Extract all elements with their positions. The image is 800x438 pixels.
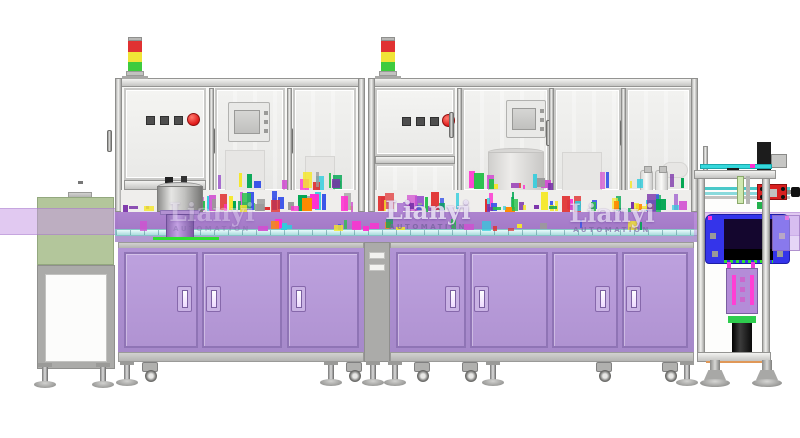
door-handle xyxy=(449,112,454,138)
machine-foot xyxy=(700,360,730,388)
machinery-parts-window-b xyxy=(463,170,690,190)
panel-button xyxy=(160,116,169,125)
infeed-sensor xyxy=(78,181,83,184)
stack-flange xyxy=(375,76,401,79)
hmi-key xyxy=(540,127,544,131)
housing-bolt xyxy=(777,251,783,257)
cabinet-door-handle xyxy=(445,286,460,312)
stack-green-lens xyxy=(381,62,395,71)
pillar-vent xyxy=(369,252,385,259)
hmi-key xyxy=(540,118,544,122)
cabinet-door-handle xyxy=(291,286,306,312)
leveling-foot xyxy=(490,364,496,380)
stack-red-lens xyxy=(381,41,395,52)
slide-shaft xyxy=(746,176,750,204)
conveyor-band-left xyxy=(0,208,118,235)
slide-bolt xyxy=(740,277,745,282)
stack-flange xyxy=(122,76,148,79)
hmi-key xyxy=(540,109,544,113)
slide-bolt xyxy=(740,297,745,302)
station-post xyxy=(697,178,705,362)
machinery-parts-b xyxy=(375,190,691,212)
hmi-key xyxy=(264,111,268,115)
hmi-key xyxy=(264,129,268,133)
stack-yellow-lens xyxy=(128,52,142,62)
module-a-control-door xyxy=(124,88,206,180)
panel-button xyxy=(174,116,183,125)
stack-light-a xyxy=(122,37,148,79)
module-b-top-rail xyxy=(368,78,698,87)
machine-foot xyxy=(752,360,782,388)
hmi-key xyxy=(264,120,268,124)
cabinet-pillar xyxy=(364,242,390,362)
cabinet-door-handle xyxy=(177,286,192,312)
caster-wheel xyxy=(142,362,158,372)
housing-bolt xyxy=(712,251,718,257)
panel-button xyxy=(416,117,425,126)
hmi-panel-a xyxy=(228,102,270,142)
leveling-foot xyxy=(684,364,690,380)
leveling-foot xyxy=(392,364,398,380)
caster-wheel xyxy=(346,362,362,372)
cabinet-door-handle xyxy=(206,286,221,312)
press-slide-block xyxy=(726,268,758,314)
frame-post xyxy=(358,78,365,212)
emergency-stop-button xyxy=(187,113,200,126)
sensor-dot xyxy=(750,164,755,168)
cabinet-door-handle xyxy=(626,286,641,312)
press-cylinder xyxy=(732,323,752,353)
adjust-knob xyxy=(791,187,800,197)
stack-red-lens xyxy=(128,41,142,52)
frame-post xyxy=(368,78,375,212)
leveling-foot xyxy=(370,364,376,380)
hmi-screen xyxy=(512,108,536,130)
bowl-feeder-body xyxy=(157,186,203,212)
frame-post xyxy=(457,88,462,192)
cabinet-door-handle xyxy=(595,286,610,312)
machinery-parts-window-a xyxy=(217,172,357,190)
caster-wheel xyxy=(596,362,612,372)
pillar-vent xyxy=(369,264,385,271)
stack-yellow-lens xyxy=(381,52,395,62)
clamp-bolt xyxy=(781,195,785,199)
infeed-stand-panel xyxy=(45,274,107,362)
leveling-foot xyxy=(124,364,130,380)
panel-button xyxy=(402,117,411,126)
caster-wheel xyxy=(414,362,430,372)
slide-bolt xyxy=(740,287,745,292)
hmi-panel-b xyxy=(506,100,546,138)
leveling-foot xyxy=(42,366,48,382)
accent-green-line xyxy=(153,237,219,240)
motor-coupler xyxy=(771,154,787,168)
panel-button xyxy=(146,116,155,125)
green-slide-bar xyxy=(737,176,744,204)
leveling-foot xyxy=(328,364,334,380)
stack-green-lens xyxy=(128,62,142,71)
slide-slot xyxy=(750,275,754,305)
module-b-mid-rail xyxy=(375,156,455,164)
housing-bolt xyxy=(710,233,716,239)
station-post xyxy=(762,178,770,362)
automation-line-render: Lianyi AUTOMATION Lianyi AUTOMATION Lian… xyxy=(0,0,800,438)
bowl-feeder-base xyxy=(166,214,194,238)
hmi-screen xyxy=(234,110,260,134)
panel-button xyxy=(430,117,439,126)
sensor-dot xyxy=(708,216,712,220)
leveling-foot xyxy=(100,366,106,382)
cabinet-b-bottom-strip xyxy=(390,352,694,362)
side-guard-panel xyxy=(772,215,800,251)
frame-post xyxy=(209,88,214,192)
cabinet-door-handle xyxy=(474,286,489,312)
press-green-collar xyxy=(728,316,756,323)
door-handle xyxy=(107,130,112,152)
stack-light-b xyxy=(375,37,401,79)
caster-wheel xyxy=(462,362,478,372)
caster-wheel xyxy=(662,362,678,372)
module-a-top-rail xyxy=(115,78,365,87)
slide-slot xyxy=(732,275,736,305)
clamp-bolt xyxy=(781,187,785,191)
front-parts xyxy=(120,219,694,231)
clamp-hub xyxy=(769,189,777,197)
